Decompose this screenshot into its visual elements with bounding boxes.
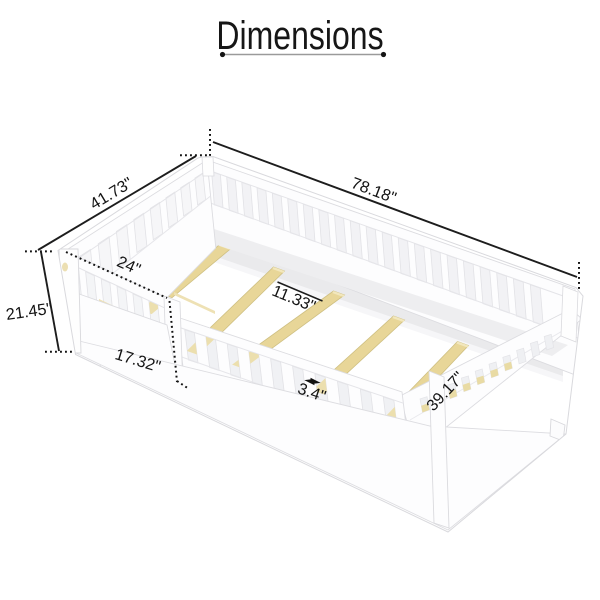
- svg-text:41.73": 41.73": [87, 174, 136, 214]
- svg-text:21.45": 21.45": [5, 300, 54, 324]
